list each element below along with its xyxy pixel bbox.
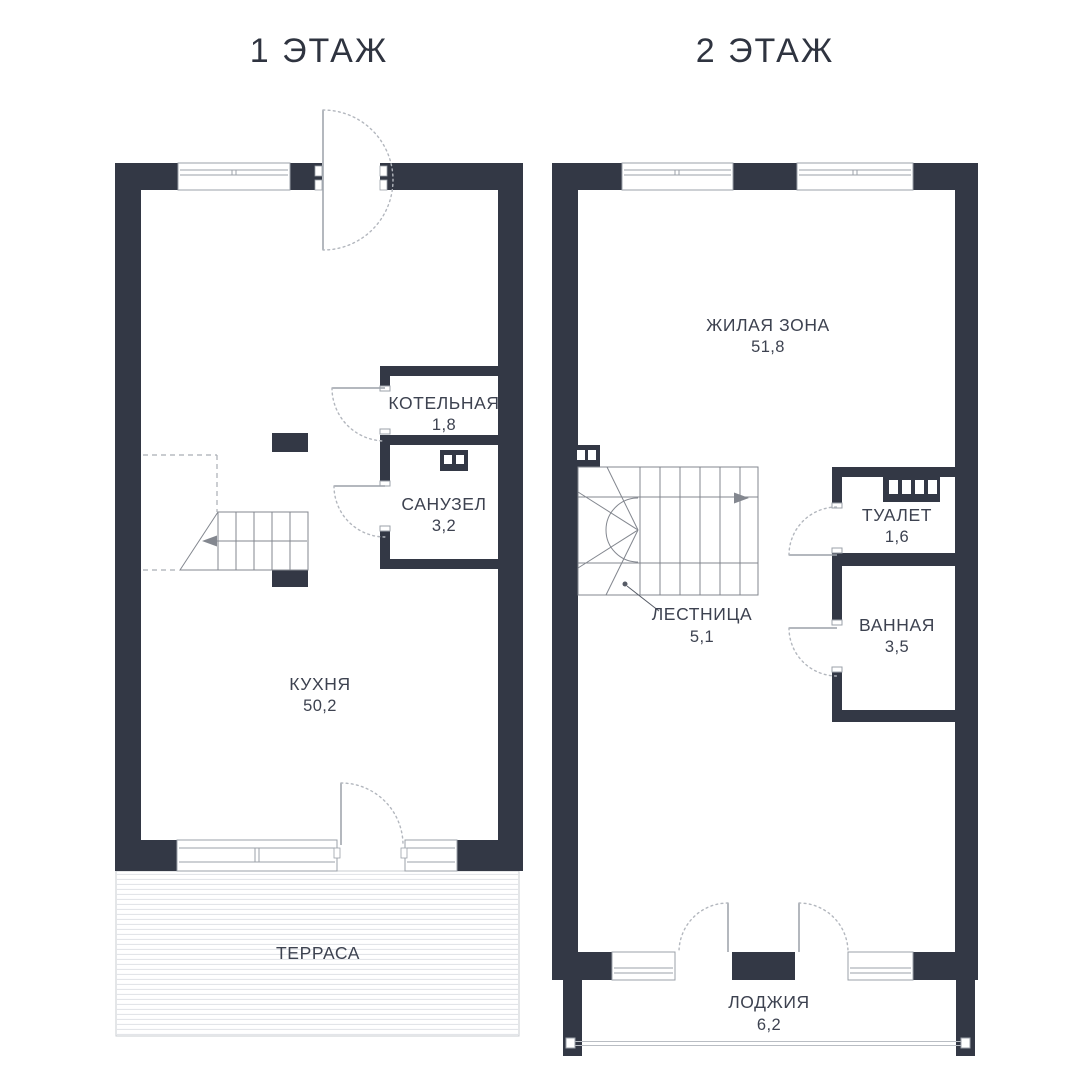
floor1-plan: 1 ЭТАЖ <box>115 32 523 1036</box>
room-label-stairs: ЛЕСТНИЦА <box>652 604 753 624</box>
wall-segment <box>832 566 842 620</box>
wall-segment <box>380 531 390 559</box>
wall-segment <box>115 163 178 190</box>
loggia-door-left <box>679 903 728 952</box>
door-swing <box>679 903 728 952</box>
wall-segment <box>115 190 141 840</box>
wall-segment <box>552 190 578 952</box>
entrance-door <box>315 110 393 250</box>
wall-segment <box>832 672 842 710</box>
wall-segment <box>552 952 612 980</box>
wall-segment <box>913 163 978 190</box>
door-swing <box>799 903 848 952</box>
sanuzel-door <box>334 486 385 537</box>
room-label-sanuzel: САНУЗЕЛ <box>401 494 486 514</box>
room-label-living: ЖИЛАЯ ЗОНА <box>706 315 830 335</box>
window <box>848 952 913 980</box>
floor1-title: 1 ЭТАЖ <box>250 32 389 70</box>
floor2-title: 2 ЭТАЖ <box>696 32 835 70</box>
window <box>797 163 913 190</box>
wall-segment <box>380 163 523 190</box>
floor1-exterior-walls <box>115 163 523 871</box>
loggia-door-right <box>799 903 848 952</box>
door-swing <box>341 783 403 845</box>
door-swing <box>332 388 385 441</box>
wall-segment <box>913 952 978 980</box>
door-swing <box>334 486 385 537</box>
floorplan-canvas: 1 ЭТАЖ <box>0 0 1080 1080</box>
wall-segment <box>380 366 498 376</box>
room-label-loggia: ЛОДЖИЯ <box>728 992 810 1012</box>
wall-segment <box>380 559 498 569</box>
floor2-plan: 2 ЭТАЖ <box>552 32 978 1056</box>
wall-segment <box>955 190 978 952</box>
door-swing <box>789 628 837 676</box>
wall-segment <box>732 952 795 980</box>
wall-segment <box>380 445 390 481</box>
vent-icon <box>883 467 940 502</box>
boiler-door <box>332 388 385 441</box>
room-label-terrace: ТЕРРАСА <box>276 943 360 963</box>
room-label-toilet: ТУАЛЕТ <box>862 505 932 525</box>
window <box>405 840 457 871</box>
wall-segment <box>115 840 177 871</box>
leader-dot <box>623 582 628 587</box>
toilet-door <box>789 507 837 555</box>
wall-segment <box>457 840 523 871</box>
wall-segment <box>272 433 308 452</box>
room-label-kitchen: КУХНЯ <box>289 674 350 694</box>
window <box>178 163 290 190</box>
room-area-sanuzel: 3,2 <box>432 517 456 535</box>
bath-door <box>789 628 837 676</box>
floor1-staircase <box>143 455 308 570</box>
room-area-kitchen: 50,2 <box>303 697 337 715</box>
room-area-loggia: 6,2 <box>757 1016 781 1034</box>
terrace-door <box>334 783 407 858</box>
vent-icon <box>440 450 468 471</box>
wall-segment <box>733 163 797 190</box>
wall-segment <box>832 467 842 503</box>
room-area-bath: 3,5 <box>885 638 909 656</box>
wall-segment <box>552 163 622 190</box>
room-label-boiler: КОТЕЛЬНАЯ <box>388 393 499 413</box>
wall-segment <box>832 553 955 566</box>
wall-segment <box>380 435 498 445</box>
window <box>612 952 675 980</box>
wall-segment <box>380 376 390 386</box>
room-area-toilet: 1,6 <box>885 528 909 546</box>
window <box>177 840 337 871</box>
floor2-staircase <box>578 467 758 611</box>
room-area-boiler: 1,8 <box>432 416 456 434</box>
room-area-living: 51,8 <box>751 338 785 356</box>
wall-segment <box>832 710 955 722</box>
wall-segment <box>272 569 308 587</box>
wall-segment <box>498 190 523 840</box>
room-label-bath: ВАННАЯ <box>859 615 935 635</box>
room-area-stairs: 5,1 <box>690 628 714 646</box>
window <box>622 163 733 190</box>
door-swing <box>789 507 837 555</box>
vent-icon <box>573 445 600 467</box>
